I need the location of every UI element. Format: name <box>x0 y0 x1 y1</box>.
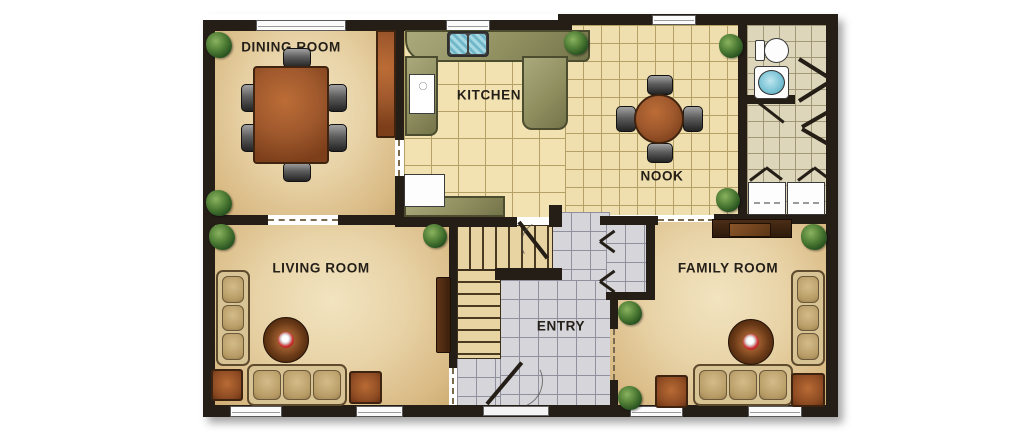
sofa-cushion <box>797 333 819 360</box>
nook-chair <box>616 106 636 132</box>
dining-hutch <box>376 30 396 138</box>
family-sofa-bottom <box>693 364 793 406</box>
tall-cabinet <box>436 277 451 353</box>
sink-basin <box>469 34 486 54</box>
staircase-lower-run <box>457 270 501 359</box>
closet-floor <box>606 224 648 294</box>
sink-basin <box>450 34 467 54</box>
family-sofa-right <box>791 270 825 366</box>
kitchen-sink <box>447 31 489 57</box>
kitchen-counter-peninsula <box>522 56 568 130</box>
wall-entry-family-upper <box>610 298 618 329</box>
potted-plant <box>564 31 588 55</box>
sofa-cushion <box>797 305 819 332</box>
entry-label: ENTRY <box>537 319 585 334</box>
stove <box>409 74 435 114</box>
wall-closet-right <box>646 216 655 300</box>
potted-plant <box>716 188 740 212</box>
living-coffee-table <box>263 317 309 363</box>
sofa-cushion <box>729 370 757 400</box>
potted-plant <box>206 190 232 216</box>
sofa-cushion <box>253 370 281 400</box>
dining-table <box>253 66 329 164</box>
sofa-cushion <box>222 276 244 303</box>
potted-plant <box>206 32 232 58</box>
flower-centerpiece <box>743 334 760 351</box>
sofa-cushion <box>759 370 787 400</box>
window-living-bottom-right <box>356 406 403 417</box>
kitchen-label: KITCHEN <box>457 88 521 103</box>
entertainment-center <box>712 219 792 238</box>
potted-plant <box>801 224 827 250</box>
family-room-label: FAMILY ROOM <box>678 261 778 276</box>
opening-living-entry <box>452 368 454 404</box>
potted-plant <box>423 224 447 248</box>
window-family-bottom-right <box>748 406 802 417</box>
dryer <box>787 182 825 215</box>
window-living-bottom-left <box>230 406 282 417</box>
opening-dining-living <box>268 219 338 221</box>
dining-chair <box>327 124 347 152</box>
window-dining-top <box>256 20 346 31</box>
toilet-bowl <box>764 38 789 63</box>
sofa-cushion <box>283 370 311 400</box>
sofa-cushion <box>222 305 244 332</box>
tv-screen <box>729 223 771 237</box>
wall-top-right <box>565 14 838 25</box>
potted-plant <box>618 301 642 325</box>
nook-label: NOOK <box>641 169 684 184</box>
nook-chair <box>647 75 673 95</box>
living-sofa-left <box>216 270 250 366</box>
window-nook-top <box>652 15 696 25</box>
wall-top-jog <box>558 14 572 31</box>
dining-chair <box>327 84 347 112</box>
wall-left <box>203 20 215 417</box>
opening-entry-family <box>613 329 615 380</box>
sofa-cushion <box>313 370 341 400</box>
opening-dining-kitchen <box>398 140 400 176</box>
nook-chair <box>647 143 673 163</box>
dining-chair <box>283 162 311 182</box>
bathroom-sink <box>758 70 785 95</box>
sofa-cushion <box>699 370 727 400</box>
potted-plant <box>618 386 642 410</box>
end-table <box>211 369 243 401</box>
floor-plan: DINING ROOM KITCHEN NOOK LIVING ROOM <box>0 0 1035 432</box>
end-table <box>655 375 688 408</box>
potted-plant <box>719 34 743 58</box>
wall-entry-family-lower <box>610 380 618 406</box>
nook-table <box>634 94 684 144</box>
end-table <box>791 373 825 407</box>
sofa-cushion <box>222 333 244 360</box>
washer <box>748 182 786 215</box>
flower-centerpiece <box>278 332 295 349</box>
refrigerator <box>404 174 445 207</box>
living-sofa-bottom <box>247 364 347 406</box>
potted-plant <box>209 224 235 250</box>
wall-dining-kitchen-upper <box>395 25 404 140</box>
dining-chair <box>283 48 311 68</box>
living-room-label: LIVING ROOM <box>272 261 369 276</box>
sofa-cushion <box>797 276 819 303</box>
opening-nook-family <box>658 219 714 221</box>
family-coffee-table <box>728 319 774 365</box>
nook-chair <box>683 106 703 132</box>
wall-stair-stub <box>495 268 562 280</box>
end-table <box>349 371 382 404</box>
